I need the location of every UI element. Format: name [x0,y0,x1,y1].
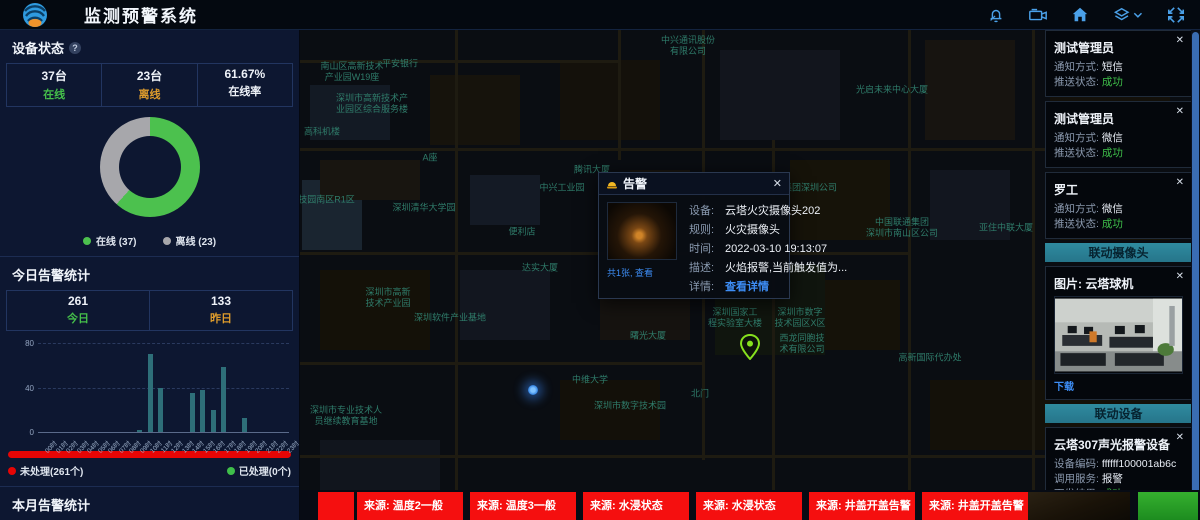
map-place-label: 北门 [691,389,709,400]
bar[interactable] [221,367,226,432]
month-alert-title: 本月告警统计 [0,487,299,520]
field-label: 描述: [689,259,725,278]
unprocessed-legend: 未处理(261个) [8,463,83,478]
close-icon[interactable]: ✕ [1176,271,1184,282]
field-value: 火灾摄像头 [725,221,780,240]
field-value: 2022-03-10 19:13:07 [725,240,827,259]
help-icon[interactable]: ? [69,42,81,54]
alert-source-tile[interactable]: 来源: 水浸状态 [583,492,689,520]
monitor-dashboard: 监测预警系统 [0,0,1200,520]
field-value: 微信 [1102,132,1123,144]
map-place-label: 平安银行 [382,59,418,70]
field-value: 成功 [1102,218,1123,230]
snapshot-links[interactable]: 共1张, 查看 [607,266,681,279]
scrollbar-thumb[interactable] [1192,32,1199,516]
card-field-row: 通知方式: 微信 [1054,131,1183,146]
popup-field-row: 规则:火灾摄像头 [689,221,847,240]
field-value: 火焰报警,当前触发值为... [725,259,847,278]
map-road [455,30,458,520]
map-place-label: 西龙同胞技 术有限公司 [779,333,824,355]
header-actions [986,5,1186,25]
map-building-block [430,75,520,145]
alert-green-tile[interactable] [1138,492,1198,520]
map-road [300,362,705,365]
bell-muted-icon[interactable] [986,5,1006,25]
top-header: 监测预警系统 [0,0,1200,30]
map-place-label: 中维大学 [572,375,608,386]
home-icon[interactable] [1070,5,1090,25]
donut-legend-item: 离线 (23) [163,233,217,248]
map-building-block [470,175,540,225]
process-legend: 未处理(261个) 已处理(0个) [8,463,291,478]
legend-dot-icon [83,237,91,245]
today-alert-table: 261今日133昨日 [6,290,293,331]
donut-legend-item: 在线 (37) [83,233,137,248]
stat-value: 61.67% [198,67,292,81]
left-stats-panel: 设备状态 ? 37台在线23台离线61.67%在线率 在线 (37)离线 (23… [0,30,300,520]
field-value: 报警 [1102,473,1123,485]
device-status-cell: 23台离线 [102,64,197,106]
map-building-block [925,40,1015,140]
card-field-row: 通知方式: 短信 [1054,60,1183,75]
stat-value: 133 [150,294,292,308]
card-field-row: 推送状态: 成功 [1054,75,1183,90]
alert-source-tile[interactable]: 来源: 温度3一般 [470,492,576,520]
close-icon[interactable]: ✕ [1176,432,1184,443]
alert-location-pin[interactable] [739,334,761,365]
field-label: 详情: [689,278,725,297]
map-building-block [720,50,840,140]
y-tick-label: 80 [6,339,34,348]
camera-image-title: 图片: 云塔球机 [1054,275,1183,292]
map-building-block [560,60,660,140]
device-name: 云塔307声光报警设备 [1054,436,1183,453]
green-dot-icon [227,467,235,475]
popup-field-row: 时间:2022-03-10 19:13:07 [689,240,847,259]
close-icon[interactable]: ✕ [1176,177,1184,188]
device-donut-chart: 在线 (37)离线 (23) [0,107,299,248]
close-icon[interactable]: ✕ [1176,106,1184,117]
bottom-alert-ticker: 来源: 温度2一般来源: 温度3一般来源: 水浸状态来源: 水浸状态来源: 井盖… [300,490,1200,520]
notification-card: ✕测试管理员通知方式: 微信推送状态: 成功 [1045,101,1192,168]
alert-popup-title: 告警 [623,175,647,192]
field-label: 通知方式: [1054,132,1102,144]
recipient-name: 罗工 [1054,181,1183,198]
field-value: ffffff100001ab6c [1102,458,1176,470]
legend-label: 离线 (23) [176,233,217,248]
y-tick-label: 40 [6,384,34,393]
field-value: 云塔火灾摄像头202 [725,202,820,221]
card-field-row: 设备编码: ffffff100001ab6c [1054,457,1183,472]
map-place-label: 中兴工业园 [539,183,584,194]
stat-value: 261 [7,294,149,308]
recipient-name: 测试管理员 [1054,110,1183,127]
alert-popup-body: 共1张, 查看 设备:云塔火灾摄像头202规则:火灾摄像头时间:2022-03-… [599,195,789,304]
alert-snapshot-image[interactable] [607,202,677,260]
bar[interactable] [200,390,205,432]
field-label: 推送状态: [1054,76,1102,88]
alert-source-tile[interactable]: 来源: 井盖开盖告警 [809,492,915,520]
fullscreen-icon[interactable] [1166,5,1186,25]
stat-label: 离线 [102,86,196,102]
alert-source-tile[interactable]: 来源: 温度2一般 [357,492,463,520]
app-logo [22,2,48,28]
bar[interactable] [137,430,142,432]
alert-popup-header: 告警 ✕ [599,173,789,195]
stat-label: 今日 [7,310,149,326]
map-place-label: 深圳国家工 程实验室大楼 [708,307,762,329]
bar[interactable] [211,410,216,432]
today-alert-cell: 261今日 [7,291,150,330]
donut-chart [100,117,200,217]
map-place-label: 中兴通讯股份 有限公司 [661,35,715,57]
alert-camera-tile[interactable] [1028,492,1130,520]
close-icon[interactable]: ✕ [1176,35,1184,46]
field-label: 设备编码: [1054,458,1102,470]
legend-dot-icon [163,237,171,245]
stat-value: 23台 [102,67,196,84]
map-place-label: 光启未来中心大厦 [856,85,928,96]
linked-camera-card: ✕图片: 云塔球机下载 [1045,266,1192,400]
close-icon[interactable]: ✕ [773,177,782,190]
alert-source-tile[interactable]: 来源: 井盖开盖告警 [922,492,1028,520]
map-building-block [320,270,430,350]
map-place-label: 南山区高新技术 产业园W19座 [320,61,383,83]
field-value: 成功 [1102,76,1123,88]
popup-field-row: 描述:火焰报警,当前触发值为... [689,259,847,278]
field-label: 设备: [689,202,725,221]
map-place-label: 深圳市高新技术产 业园区综合服务楼 [336,93,408,115]
vertical-scrollbar[interactable] [1191,30,1200,520]
stat-label: 昨日 [150,310,292,326]
map-place-label: 亚住中联大厦 [979,223,1033,234]
alert-popup-fields: 设备:云塔火灾摄像头202规则:火灾摄像头时间:2022-03-10 19:13… [681,202,847,297]
bar[interactable] [190,393,195,432]
map-place-label: 深圳市数字 技术园区X区 [774,307,825,329]
x-axis-line [38,432,289,433]
field-value: 成功 [1102,147,1123,159]
alarm-light-icon [606,178,618,190]
processed-legend: 已处理(0个) [227,463,291,478]
red-dot-icon [8,467,16,475]
view-details-link[interactable]: 查看详情 [725,278,769,297]
map-place-label: 深圳软件产业基地 [414,313,486,324]
bar[interactable] [148,354,153,432]
video-camera-icon[interactable] [1028,5,1048,25]
map-place-label: 高科机楼 [304,127,340,138]
map-place-label: 便利店 [508,227,535,238]
grid-line [38,343,289,344]
map-road [1032,30,1035,520]
popup-field-row: 设备:云塔火灾摄像头202 [689,202,847,221]
hourly-alert-bar-chart: 8040000时01时02时03时04时05时06时07时08时09时10时11… [6,337,293,445]
map-place-label: 科技园南区R1区 [300,195,355,206]
right-notification-panel: ✕测试管理员通知方式: 短信推送状态: 成功✕测试管理员通知方式: 微信推送状态… [1045,30,1192,520]
map-place-label: 深圳市高新 技术产业园 [365,287,410,309]
field-value: 短信 [1102,61,1123,73]
legend-label: 在线 (37) [96,233,137,248]
map-place-label: 曙光大厦 [630,331,666,342]
card-field-row: 推送状态: 成功 [1054,217,1183,232]
popup-field-row: 详情:查看详情 [689,278,847,297]
map-place-label: A座 [422,153,437,164]
linked-device-header: 联动设备 [1045,404,1192,423]
field-label: 通知方式: [1054,203,1102,215]
card-field-row: 调用服务: 报警 [1054,472,1183,487]
map-place-label: 深圳清华大学园 [392,203,455,214]
donut-legend: 在线 (37)离线 (23) [83,233,216,248]
stat-value: 37台 [7,67,101,84]
device-status-title: 设备状态 ? [0,30,299,63]
map-place-label: 达实大厦 [522,263,558,274]
grid-line [38,388,289,389]
map-place-label: 中国联通集团 深圳市南山区公司 [866,217,938,239]
field-value: 微信 [1102,203,1123,215]
linked-camera-header: 联动摄像头 [1045,243,1192,262]
device-status-table: 37台在线23台离线61.67%在线率 [6,63,293,107]
field-label: 时间: [689,240,725,259]
card-field-row: 通知方式: 微信 [1054,202,1183,217]
y-tick-label: 0 [6,428,34,437]
map-place-label: 深圳市专业技术人 员继续教育基地 [310,405,382,427]
field-label: 通知方式: [1054,61,1102,73]
card-field-row: 推送状态: 成功 [1054,146,1183,161]
alert-source-tile[interactable]: 来源: 水浸状态 [696,492,802,520]
map-place-label: 高新国际代办处 [898,353,961,364]
map-road [618,30,621,160]
notification-card: ✕测试管理员通知方式: 短信推送状态: 成功 [1045,30,1192,97]
alert-source-tile[interactable] [318,492,354,520]
today-alert-title: 今日告警统计 [0,257,299,290]
map-building-block [460,270,550,340]
camera-snapshot-image[interactable] [1054,296,1183,374]
device-location-dot[interactable] [528,385,538,395]
download-link[interactable]: 下载 [1054,378,1183,393]
alert-popup: 告警 ✕ 共1张, 查看 设备:云塔火灾摄像头202规则:火灾摄像头时间:202… [598,172,790,299]
device-status-cell: 61.67%在线率 [198,64,292,106]
field-label: 调用服务: [1054,473,1102,485]
bar[interactable] [158,388,163,433]
page-title: 监测预警系统 [84,2,198,27]
field-label: 推送状态: [1054,147,1102,159]
recipient-name: 测试管理员 [1054,39,1183,56]
layers-icon[interactable] [1112,5,1144,25]
field-label: 规则: [689,221,725,240]
today-alert-cell: 133昨日 [150,291,292,330]
stat-label: 在线率 [198,83,292,99]
device-status-cell: 37台在线 [7,64,102,106]
map-place-label: 深圳市数字技术园 [594,401,666,412]
map-road [908,30,911,520]
bar[interactable] [242,418,247,432]
notification-card: ✕罗工通知方式: 微信推送状态: 成功 [1045,172,1192,239]
field-label: 推送状态: [1054,218,1102,230]
stat-label: 在线 [7,86,101,102]
